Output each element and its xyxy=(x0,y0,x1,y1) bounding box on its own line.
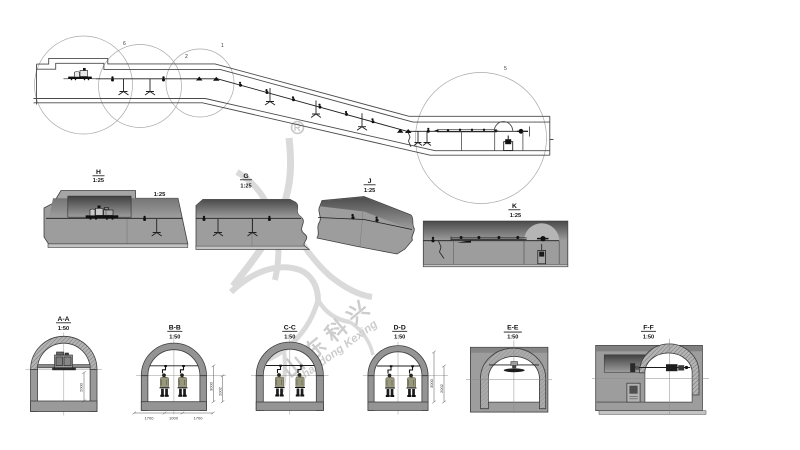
svg-text:1:25: 1:25 xyxy=(93,178,104,184)
svg-text:1:25: 1:25 xyxy=(510,213,521,219)
svg-text:1000: 1000 xyxy=(169,416,179,421)
svg-text:D-D: D-D xyxy=(394,325,406,332)
svg-text:1:50: 1:50 xyxy=(169,335,180,341)
svg-text:1:25: 1:25 xyxy=(364,188,375,194)
svg-text:J: J xyxy=(368,178,372,185)
svg-text:2: 2 xyxy=(185,54,188,60)
svg-text:6: 6 xyxy=(123,41,126,47)
svg-text:C-C: C-C xyxy=(284,325,296,332)
svg-text:G: G xyxy=(243,173,248,180)
svg-text:1:50: 1:50 xyxy=(507,335,518,341)
svg-text:1700: 1700 xyxy=(194,416,204,421)
svg-text:1:50: 1:50 xyxy=(58,326,69,332)
svg-text:3000: 3000 xyxy=(429,378,434,388)
svg-text:A-A: A-A xyxy=(57,316,69,323)
svg-text:2002: 2002 xyxy=(217,386,222,396)
svg-text:E-E: E-E xyxy=(507,325,519,332)
svg-text:3000: 3000 xyxy=(208,381,213,391)
svg-text:2000: 2000 xyxy=(79,382,84,392)
svg-text:2002: 2002 xyxy=(439,383,444,393)
svg-text:H: H xyxy=(96,169,101,176)
svg-text:B-B: B-B xyxy=(169,325,181,332)
svg-text:F-F: F-F xyxy=(643,325,654,332)
svg-text:K: K xyxy=(512,203,517,210)
svg-text:1:50: 1:50 xyxy=(394,335,405,341)
svg-text:1:25: 1:25 xyxy=(240,184,251,190)
svg-text:1: 1 xyxy=(221,43,224,49)
svg-text:1:50: 1:50 xyxy=(643,335,654,341)
svg-text:1700: 1700 xyxy=(145,416,155,421)
svg-text:5: 5 xyxy=(504,66,507,72)
svg-text:1:25: 1:25 xyxy=(154,192,166,198)
